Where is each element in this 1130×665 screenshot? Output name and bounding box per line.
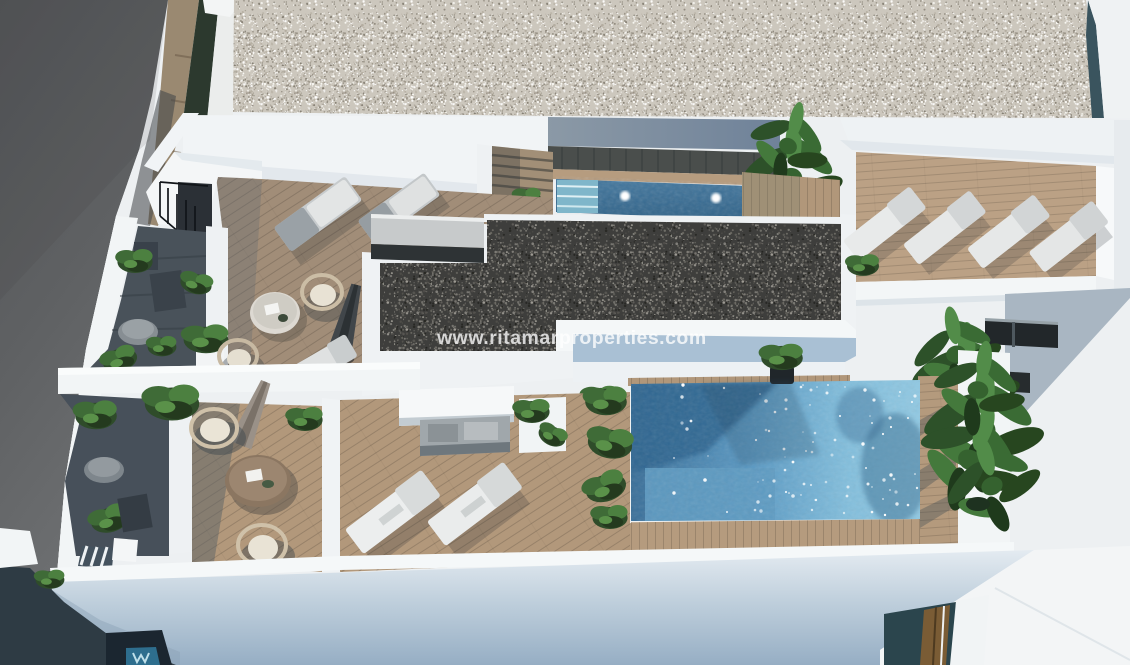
svg-text:www.ritamarproperties.com: www.ritamarproperties.com (436, 327, 707, 349)
